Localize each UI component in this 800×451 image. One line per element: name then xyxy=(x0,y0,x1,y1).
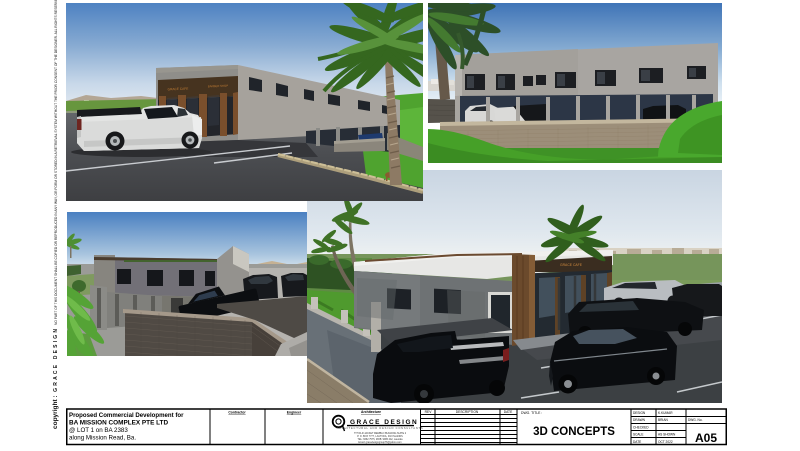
svg-text:Contractor: Contractor xyxy=(228,411,246,415)
svg-text:K.KUMAR: K.KUMAR xyxy=(658,411,673,415)
svg-text:AS SHOWN: AS SHOWN xyxy=(658,433,676,437)
svg-text:SCALE: SCALE xyxy=(633,433,643,437)
svg-text:A05: A05 xyxy=(695,431,717,445)
svg-text:REV: REV xyxy=(425,410,433,414)
svg-text:ARCHITECTURAL AND DESIGN CONSU: ARCHITECTURAL AND DESIGN CONSULTANTS xyxy=(337,426,424,430)
svg-text:along Mission Read, Ba.: along Mission Read, Ba. xyxy=(69,435,136,442)
svg-text:Proposed Commercial Developmen: Proposed Commercial Development for xyxy=(69,412,184,419)
svg-text:3D CONCEPTS: 3D CONCEPTS xyxy=(533,426,615,438)
svg-text:BA MISSION COMPLEX PTE LTD: BA MISSION COMPLEX PTE LTD xyxy=(69,420,168,427)
svg-text:DRAWN: DRAWN xyxy=(633,418,646,422)
svg-text:OCT 2022: OCT 2022 xyxy=(658,440,673,444)
svg-text:BRIAN: BRIAN xyxy=(658,418,668,422)
svg-text:DWG. No.: DWG. No. xyxy=(688,418,703,422)
svg-text:Architecture: Architecture xyxy=(361,410,381,414)
svg-text:Email: gracedesigngroup76@yaho: Email: gracedesigngroup76@yahoo.com xyxy=(358,441,401,444)
svg-text:DATE: DATE xyxy=(633,440,641,444)
svg-text:@ LOT 1 on BA 2383: @ LOT 1 on BA 2383 xyxy=(69,427,128,434)
svg-text:CHECKED: CHECKED xyxy=(633,425,649,429)
svg-text:Engineer: Engineer xyxy=(287,411,302,415)
svg-text:DATE: DATE xyxy=(504,410,513,414)
svg-text:GRACE CAFE: GRACE CAFE xyxy=(168,87,189,92)
svg-text:DESCRIPTION: DESCRIPTION xyxy=(456,410,479,414)
svg-text:BARBER SHOP: BARBER SHOP xyxy=(208,84,228,89)
svg-text:GRACE CAFE: GRACE CAFE xyxy=(560,263,583,267)
svg-text:DESIGN: DESIGN xyxy=(633,411,646,415)
svg-text:DWG. TITLE :: DWG. TITLE : xyxy=(521,411,542,415)
